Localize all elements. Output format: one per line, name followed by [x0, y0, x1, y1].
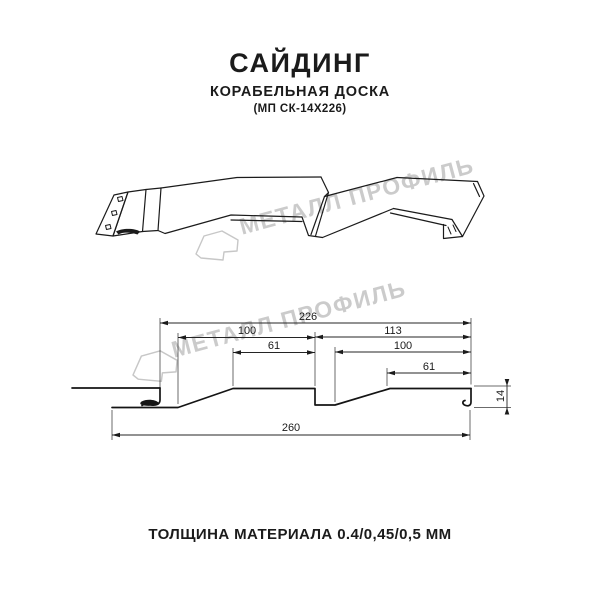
profile-3d-view	[96, 177, 484, 239]
technical-drawing-svg	[0, 0, 600, 600]
profile-outline	[72, 388, 471, 408]
dim-label-right-board: 113	[384, 325, 402, 337]
extension-lines	[112, 318, 511, 440]
dim-label-right-board-flat: 61	[423, 361, 435, 373]
dim-label-overall-bottom: 260	[282, 422, 300, 434]
dim-label-right-board-inner: 100	[394, 340, 412, 352]
dimension-arrows	[112, 321, 509, 438]
dim-label-height: 14	[495, 390, 507, 402]
end-cut-hatch	[448, 225, 456, 234]
dimension-lines	[112, 323, 507, 435]
dim-label-left-board: 100	[238, 325, 256, 337]
drawing-page: САЙДИНГ КОРАБЕЛЬНАЯ ДОСКА (МП СК-14Х226)…	[0, 0, 600, 600]
dim-label-left-board-flat: 61	[268, 340, 280, 352]
dim-label-overall-top: 226	[299, 311, 317, 323]
metall-profil-logo-icon	[133, 231, 238, 381]
